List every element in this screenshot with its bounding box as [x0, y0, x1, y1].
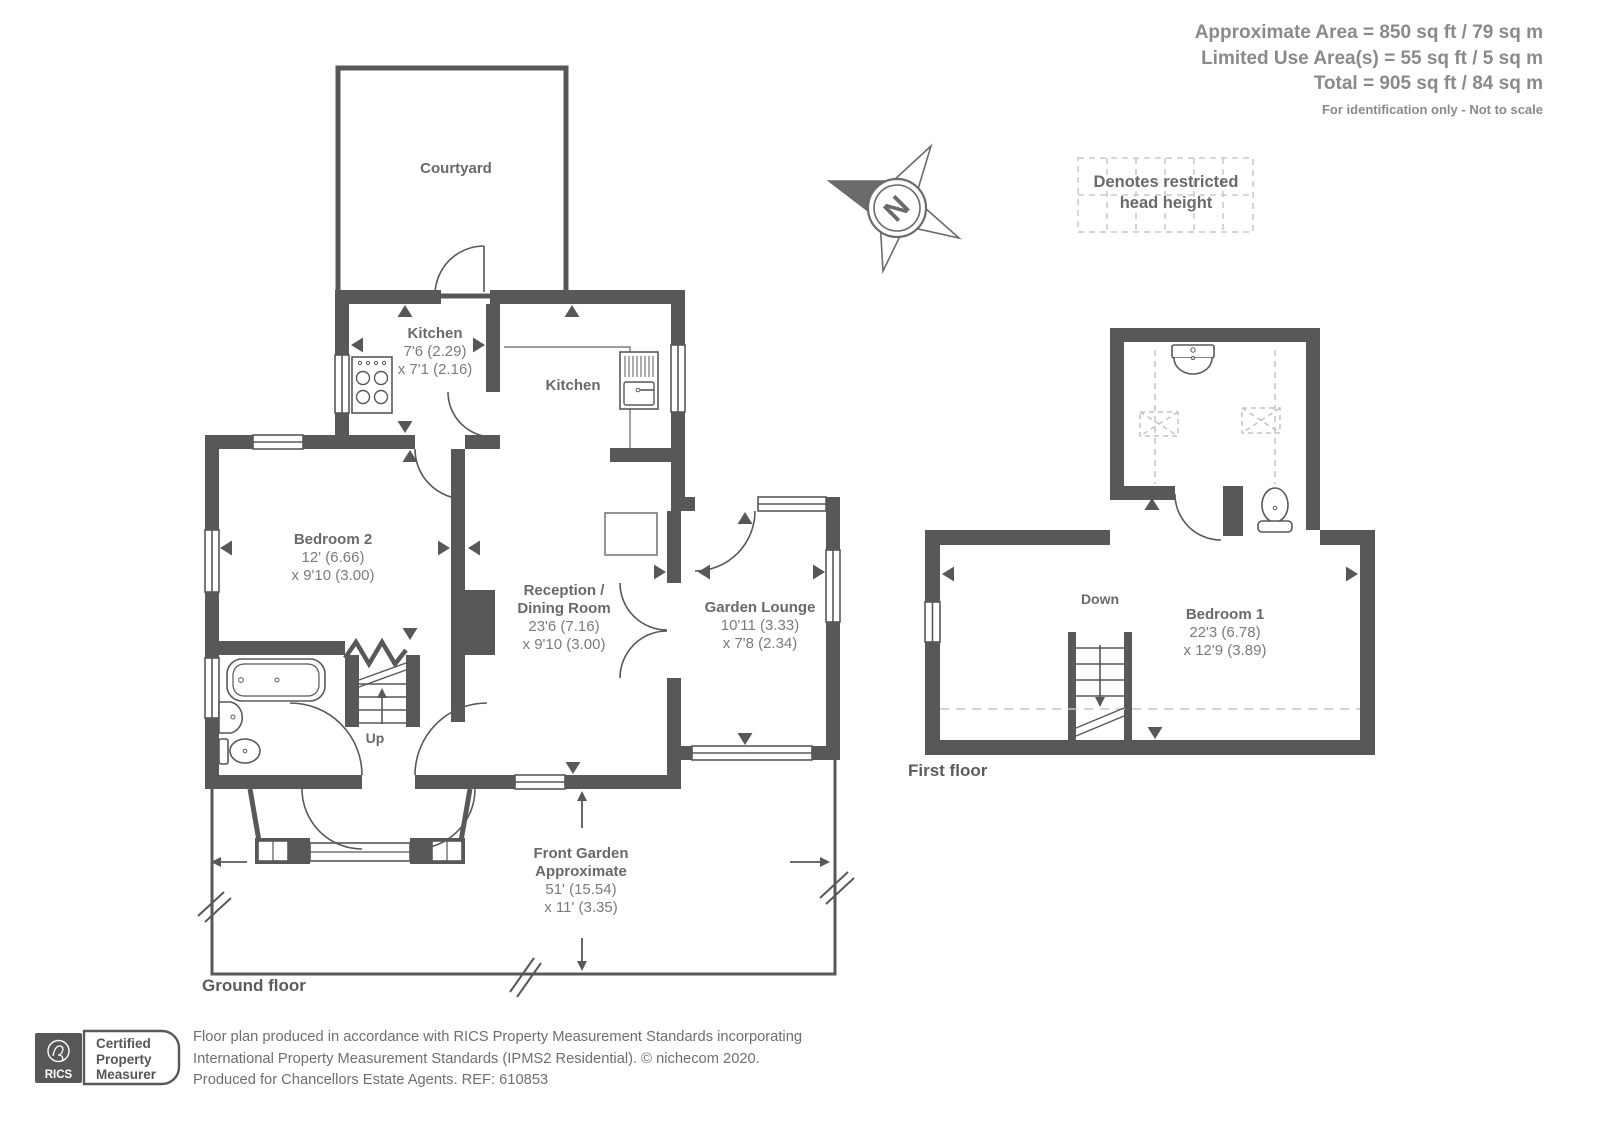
footer-disclaimer: Floor plan produced in accordance with R… [193, 1027, 802, 1092]
rics-logo-text: RICS [45, 1069, 73, 1081]
stairs-up [359, 663, 406, 724]
window [692, 746, 812, 760]
window [826, 550, 840, 622]
porch-door-left-arc [302, 789, 362, 849]
restricted-head-height-marks [940, 350, 1360, 709]
approximate-area: Approximate Area = 850 sq ft / 79 sq m [1195, 20, 1543, 46]
window [205, 658, 219, 718]
stairs-up-label: Up [366, 730, 385, 746]
courtyard-label: Courtyard [420, 160, 492, 178]
kitchen-sink-icon [620, 352, 658, 409]
first-floor-window [925, 602, 940, 642]
toilet-icon [219, 739, 260, 764]
garden-lounge-label: Garden Lounge 10'11 (3.33) x 7'8 (2.34) [705, 599, 816, 653]
floorplan-drawing: N RICS [0, 0, 1600, 1130]
limited-use-area: Limited Use Area(s) = 55 sq ft / 5 sq m [1195, 46, 1543, 72]
bathtub-icon [227, 659, 325, 701]
window [758, 497, 826, 511]
kitchen-main-label: Kitchen [545, 377, 600, 395]
stairs-down [1076, 645, 1124, 736]
first-floor-toilet-icon [1258, 488, 1292, 532]
garden-dimension-arrows [219, 799, 822, 963]
stairs-down-label: Down [1081, 591, 1119, 607]
pedestal-sink-icon [1172, 345, 1214, 374]
lounge-double-door-bottom-arc [620, 631, 667, 678]
compass-icon: N [829, 146, 959, 271]
kitchen-partition-door-arc [448, 392, 493, 437]
window [515, 775, 565, 789]
front-garden-label: Front Garden Approximate 51' (15.54) x 1… [533, 845, 628, 917]
bedroom1-label: Bedroom 1 22'3 (6.78) x 12'9 (3.89) [1184, 606, 1267, 660]
first-floor-title: First floor [908, 761, 987, 781]
window [335, 355, 349, 413]
restricted-head-height-legend: Denotes restricted head height [1094, 172, 1239, 214]
window [205, 530, 219, 592]
first-floor-plan [925, 328, 1375, 755]
kitchen-peninsula-counter [605, 513, 657, 555]
stove-icon [352, 357, 392, 413]
floorplan-page: N RICS Approximate Area = 850 sq ft / 79… [0, 0, 1600, 1130]
first-floor-door-arc [1175, 494, 1221, 540]
bathroom-sink-icon [219, 702, 242, 733]
total-area: Total = 905 sq ft / 84 sq m [1195, 71, 1543, 97]
lounge-double-door-top-arc [620, 583, 667, 630]
porch-bay [250, 789, 470, 861]
courtyard-outline [338, 68, 566, 296]
ground-floor-title: Ground floor [202, 976, 306, 996]
courtyard-door-arc [435, 246, 484, 295]
area-summary: Approximate Area = 850 sq ft / 79 sq m L… [1195, 20, 1543, 118]
certified-measurer-badge: Certified Property Measurer [96, 1036, 156, 1083]
window [671, 345, 685, 412]
reception-label: Reception / Dining Room 23'6 (7.16) x 9'… [517, 582, 610, 654]
kitchen-small-label: Kitchen 7'6 (2.29) x 7'1 (2.16) [398, 325, 473, 379]
rics-logo: RICS [35, 1033, 82, 1083]
first-floor-walls [925, 328, 1375, 755]
front-garden-boundary [198, 760, 854, 997]
window [253, 435, 303, 449]
kitchen-counter-line [504, 347, 630, 448]
bedroom2-label: Bedroom 2 12' (6.66) x 9'10 (3.00) [292, 531, 375, 585]
scale-disclaimer: For identification only - Not to scale [1195, 102, 1543, 118]
